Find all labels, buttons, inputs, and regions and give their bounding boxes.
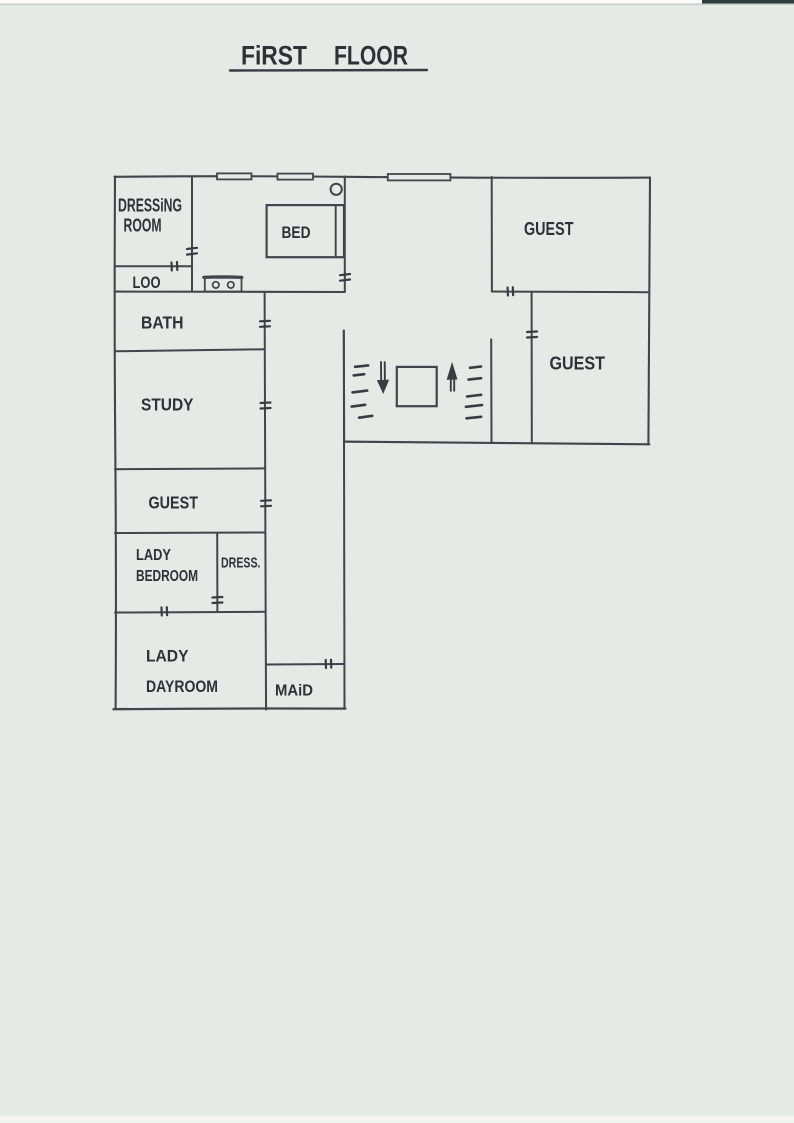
svg-text:GUEST: GUEST <box>550 354 606 374</box>
svg-text:STUDY: STUDY <box>141 395 194 415</box>
svg-text:FiRST: FiRST <box>241 41 307 71</box>
svg-text:LOO: LOO <box>133 273 161 292</box>
svg-text:GUEST: GUEST <box>524 219 574 239</box>
svg-text:BED: BED <box>282 224 311 242</box>
svg-text:DAYROOM: DAYROOM <box>146 677 218 696</box>
svg-text:BATH: BATH <box>141 313 184 333</box>
svg-text:LADY: LADY <box>146 647 189 666</box>
svg-text:DRESSiNG: DRESSiNG <box>118 196 182 216</box>
svg-text:ROOM: ROOM <box>124 216 162 236</box>
svg-text:DRESS.: DRESS. <box>221 556 261 572</box>
svg-text:LADY: LADY <box>136 547 172 564</box>
svg-text:BEDROOM: BEDROOM <box>136 568 198 585</box>
svg-text:FLOOR: FLOOR <box>334 41 408 71</box>
svg-text:GUEST: GUEST <box>149 493 199 513</box>
svg-text:MAiD: MAiD <box>275 683 313 700</box>
